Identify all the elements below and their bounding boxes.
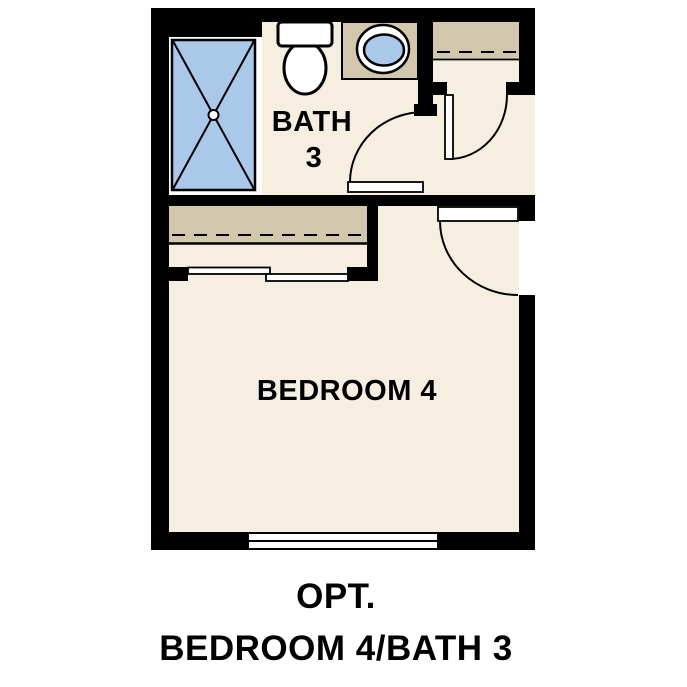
toilet-bowl [284, 42, 326, 94]
floorplan: BATH 3 BEDROOM 4 OPT. BEDROOM 4/BATH 3 [0, 0, 687, 687]
bath-right-wall [418, 8, 433, 113]
caption-line2: BEDROOM 4/BATH 3 [159, 629, 513, 668]
bedroom-door-leaf [438, 207, 518, 221]
bedroom-label: BEDROOM 4 [257, 375, 437, 407]
bedroom-window [248, 533, 438, 549]
closet-slider-panel-right [266, 274, 348, 281]
bedroom-floor [169, 206, 519, 532]
bath-door-leaf [348, 182, 423, 192]
shower-surround-wall [151, 8, 262, 37]
slider-stub-right [347, 267, 378, 281]
bath-number-label: 3 [306, 142, 323, 174]
bath-door-jamb [414, 104, 437, 116]
vanity-sink [357, 25, 409, 73]
right-wall-upper [519, 8, 535, 95]
right-wall-lower [519, 295, 535, 550]
linen-door-leaf [445, 95, 453, 159]
caption-line1: OPT. [296, 577, 376, 616]
bath-label: BATH [272, 106, 352, 138]
shower-drain [209, 110, 219, 120]
linen-header-left [418, 82, 447, 95]
bedroom-closet-shelf [169, 206, 367, 243]
floorplan-canvas: BATH 3 BEDROOM 4 OPT. BEDROOM 4/BATH 3 [0, 0, 687, 687]
closet-slider-panel-left [188, 268, 270, 275]
linen-shelf [433, 22, 519, 60]
linen-header-right [506, 82, 535, 95]
slider-stub-left [151, 267, 188, 281]
shower [166, 34, 262, 195]
mid-wall [151, 195, 535, 206]
toilet-tank [278, 22, 332, 46]
sink-basin [364, 35, 404, 66]
